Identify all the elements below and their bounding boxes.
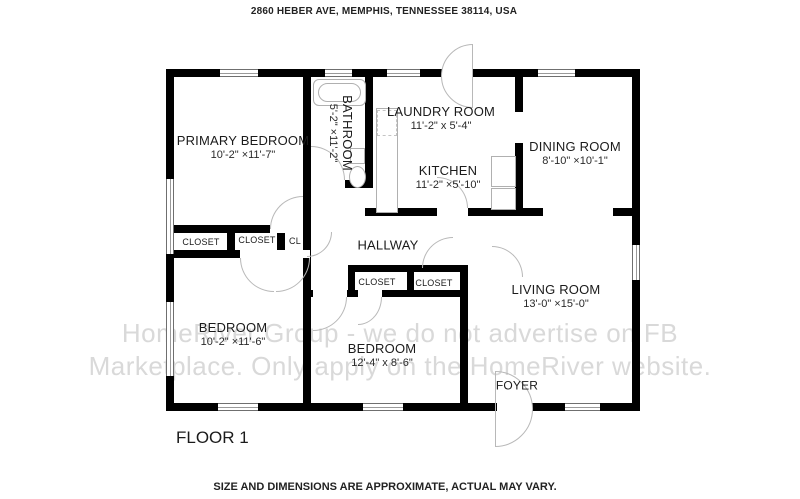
room-label-bathroom: BATHROOM 5'-2" ×11'-2" [325, 95, 355, 171]
window [538, 69, 575, 77]
window [632, 245, 640, 280]
window [363, 403, 403, 411]
floor-label: FLOOR 1 [176, 428, 249, 448]
disclaimer-text: SIZE AND DIMENSIONS ARE APPROXIMATE, ACT… [213, 481, 556, 493]
wall-kitchen-right [515, 143, 523, 215]
door-opening-bathroom [311, 180, 345, 188]
window [166, 179, 174, 254]
wall-midcloset-divider [407, 272, 414, 290]
door-arc [422, 237, 453, 268]
window [565, 403, 600, 411]
window [166, 302, 174, 376]
closet-label: CLOSET [358, 277, 395, 287]
room-label-hallway: HALLWAY [357, 238, 418, 253]
door-arc [240, 258, 274, 292]
closet-label: CLOSET [182, 237, 219, 247]
wall-bathroom-right [365, 77, 373, 188]
kitchen-appliance [491, 156, 516, 187]
door-arc [492, 246, 523, 277]
window [218, 403, 258, 411]
wall-living-left [460, 265, 468, 403]
door-arc [270, 196, 303, 229]
window [387, 69, 420, 77]
door-leaf [472, 44, 473, 108]
door-arc [307, 232, 332, 257]
address-title: 2860 HEBER AVE, MEMPHIS, TENNESSEE 38114… [251, 6, 517, 17]
kitchen-appliance [491, 188, 516, 210]
floor-plan-page: 2860 HEBER AVE, MEMPHIS, TENNESSEE 38114… [0, 0, 800, 499]
door-opening-kitchen [437, 208, 468, 216]
room-label-laundry: LAUNDRY ROOM 11'-2" x 5'-4" [387, 104, 495, 134]
closet-label: CLOSET [415, 278, 452, 288]
door-opening-bedroom-middle [313, 290, 347, 297]
window [325, 69, 352, 77]
room-label-bedroom-middle: BEDROOM 12'-4" x 8'-6" [348, 341, 417, 371]
door-opening-bedroom-left [240, 250, 310, 258]
closet-label: CL [289, 236, 301, 246]
wall-dining-stub-top [515, 77, 523, 112]
closet-label: CLOSET [238, 235, 275, 245]
room-label-foyer: FOYER [496, 379, 538, 394]
wall-outer-right [632, 69, 640, 411]
room-label-living: LIVING ROOM 13'-0" ×15'-0" [512, 282, 601, 312]
room-label-primary-bedroom: PRIMARY BEDROOM 10'-2" ×11'-7" [177, 133, 310, 163]
room-label-bedroom-left: BEDROOM 10'-2" ×11'-6" [199, 320, 268, 350]
opening-dining-living [543, 208, 613, 216]
room-label-dining: DINING ROOM 8'-10" ×10'-1" [529, 139, 621, 169]
room-label-kitchen: KITCHEN 11'-2" ×5'-10" [416, 163, 481, 193]
window [220, 69, 258, 77]
door-opening-midcloset [358, 290, 382, 297]
